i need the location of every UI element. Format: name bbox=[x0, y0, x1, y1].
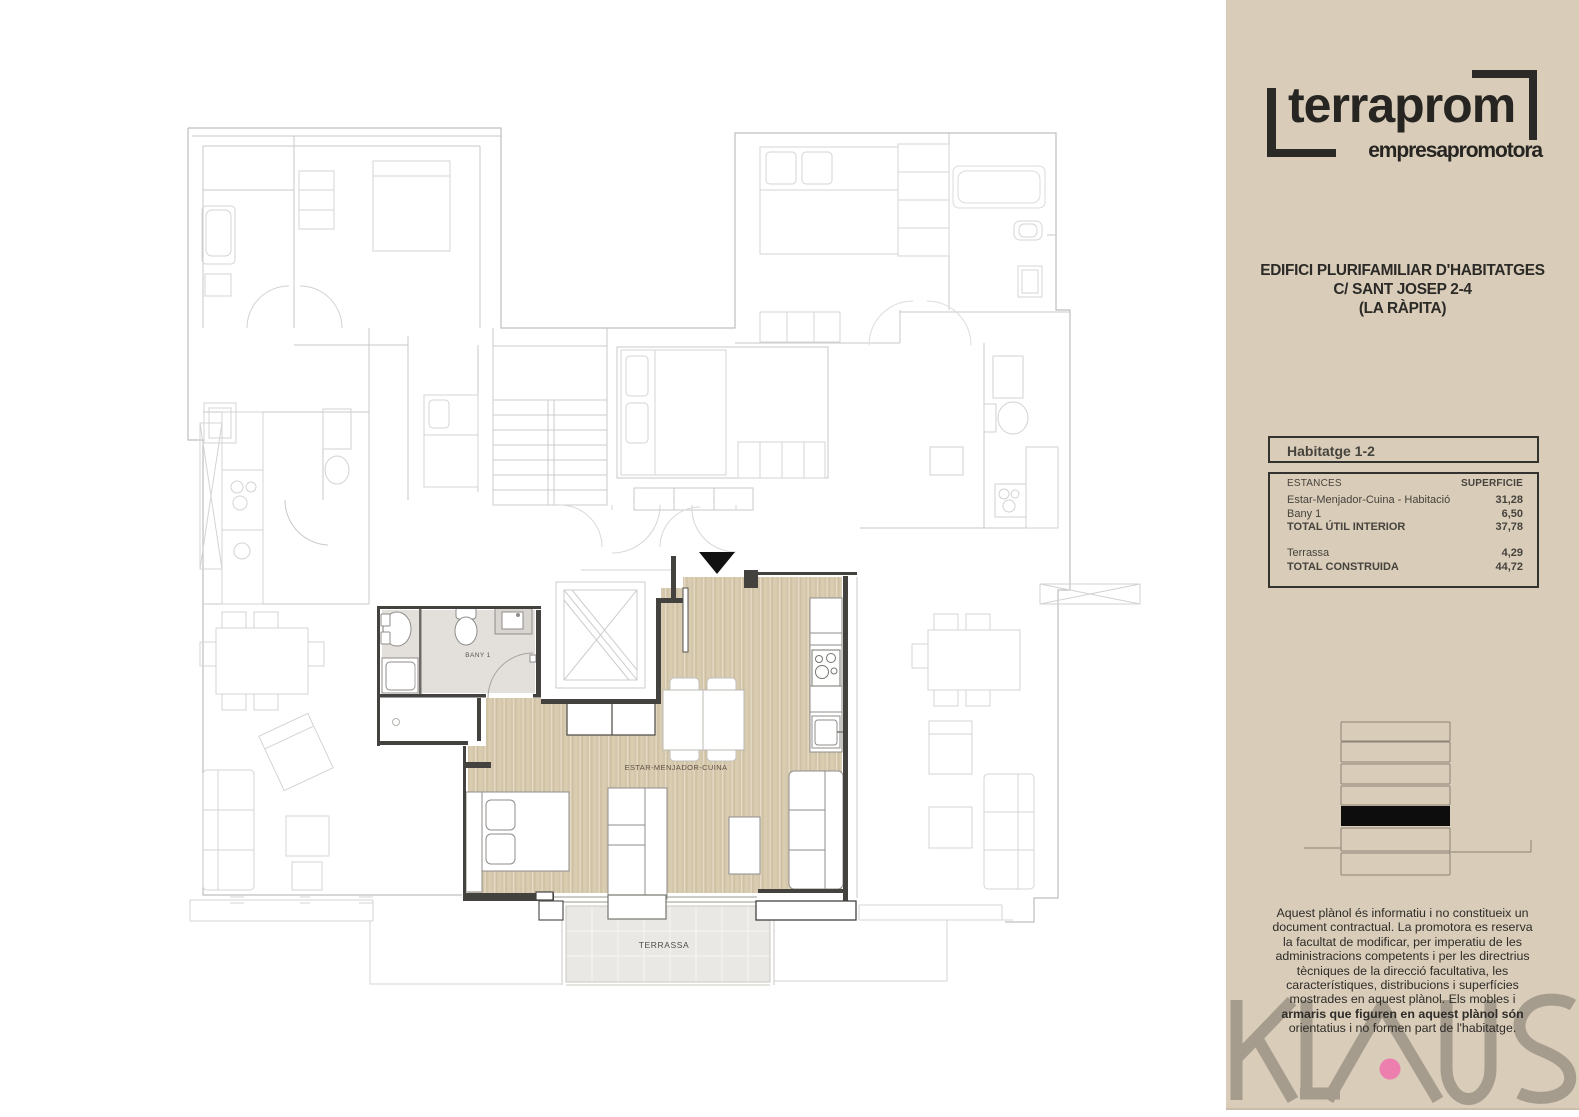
svg-text:ESTAR-MENJADOR-CUINA: ESTAR-MENJADOR-CUINA bbox=[625, 763, 728, 772]
svg-text:BANY 1: BANY 1 bbox=[465, 652, 490, 659]
svg-text:TERRASSA: TERRASSA bbox=[639, 940, 690, 950]
